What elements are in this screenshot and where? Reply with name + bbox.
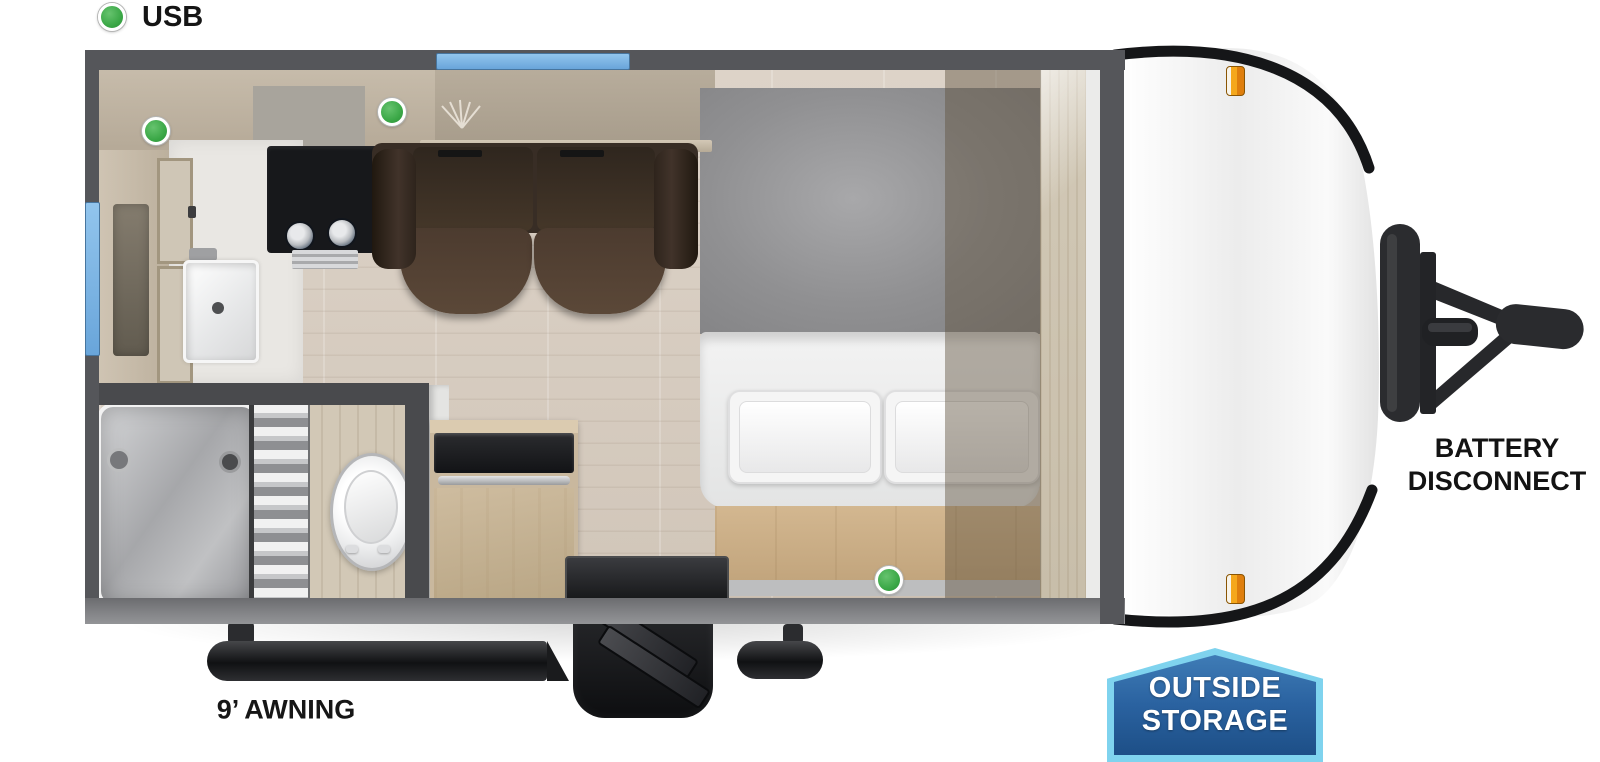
window-top	[436, 53, 630, 70]
entry-step-well	[565, 556, 729, 602]
cooktop-burner-left	[285, 221, 315, 251]
cooktop-drip-tray	[292, 250, 358, 269]
tongue-jack-highlight	[1387, 234, 1397, 412]
refrigerator-top	[434, 433, 574, 473]
usb-port-marker-sofa	[378, 98, 406, 126]
cooktop-burner-right	[327, 218, 357, 248]
usb-port-marker-bed	[875, 566, 903, 594]
usb-port-marker-kitchen	[142, 117, 170, 145]
window-left	[85, 202, 100, 356]
overhead-cabinet-left-panel	[113, 204, 149, 356]
shower-head-icon	[107, 448, 131, 472]
usb-legend-label: USB	[142, 1, 203, 34]
cabinet-handle	[438, 476, 570, 485]
rv-floorplan-diagram: USB BATTERY DISCONNECT	[0, 0, 1600, 762]
front-cap	[1085, 38, 1405, 638]
usb-legend-icon	[98, 3, 126, 31]
battery-line2: DISCONNECT	[1392, 465, 1600, 498]
awning-label: 9’ AWNING	[217, 695, 356, 726]
shower-door	[249, 404, 310, 599]
vanity-cabinet-door-upper	[157, 158, 193, 264]
decor-pages-icon	[438, 96, 486, 130]
sofa-bracket-right	[560, 150, 604, 157]
outside-storage-badge: OUTSIDE STORAGE	[1107, 648, 1323, 762]
awning-roll-left	[207, 641, 547, 681]
toilet-bowl	[344, 470, 398, 544]
front-cap-body	[1122, 48, 1379, 617]
awning-roll-right	[737, 641, 823, 679]
microwave-cabinet-door	[434, 488, 574, 600]
sofa-arm-left	[372, 149, 416, 269]
sink-drain	[212, 302, 224, 314]
toilet-hinge-left	[346, 545, 358, 553]
outside-storage-line1: OUTSIDE	[1107, 672, 1323, 705]
cabinet-top-edge	[430, 420, 578, 433]
battery-disconnect-label: BATTERY DISCONNECT	[1392, 432, 1600, 498]
shelf-overhang	[945, 68, 1041, 598]
marker-light-bottom-icon	[1226, 574, 1245, 604]
hitch-handle-highlight	[1428, 323, 1472, 332]
battery-line1: BATTERY	[1392, 432, 1600, 465]
outside-storage-line2: STORAGE	[1107, 705, 1323, 738]
tub-shower	[97, 403, 258, 607]
sofa-back-cushion-right	[537, 147, 655, 231]
bathroom-partition-wall-vertical	[405, 383, 429, 622]
sofa-back-cushion-left	[413, 147, 533, 231]
shelf-wood-panel	[1040, 68, 1088, 598]
outside-storage-label: OUTSIDE STORAGE	[1107, 672, 1323, 739]
trailer-hitch	[1378, 192, 1593, 432]
pillow-left-inner	[739, 401, 871, 473]
pillow-left	[728, 390, 882, 484]
bathroom-partition-wall-horizontal	[85, 383, 412, 405]
marker-light-top-icon	[1226, 66, 1245, 96]
toilet-hinge-right	[378, 545, 390, 553]
wall-front	[1100, 50, 1124, 624]
tub-faucet-knob-icon	[219, 451, 241, 473]
wall-bottom	[85, 598, 1125, 624]
sofa-bracket-left	[438, 150, 482, 157]
sofa-arm-right	[654, 149, 698, 269]
tongue-jack	[1380, 224, 1420, 422]
